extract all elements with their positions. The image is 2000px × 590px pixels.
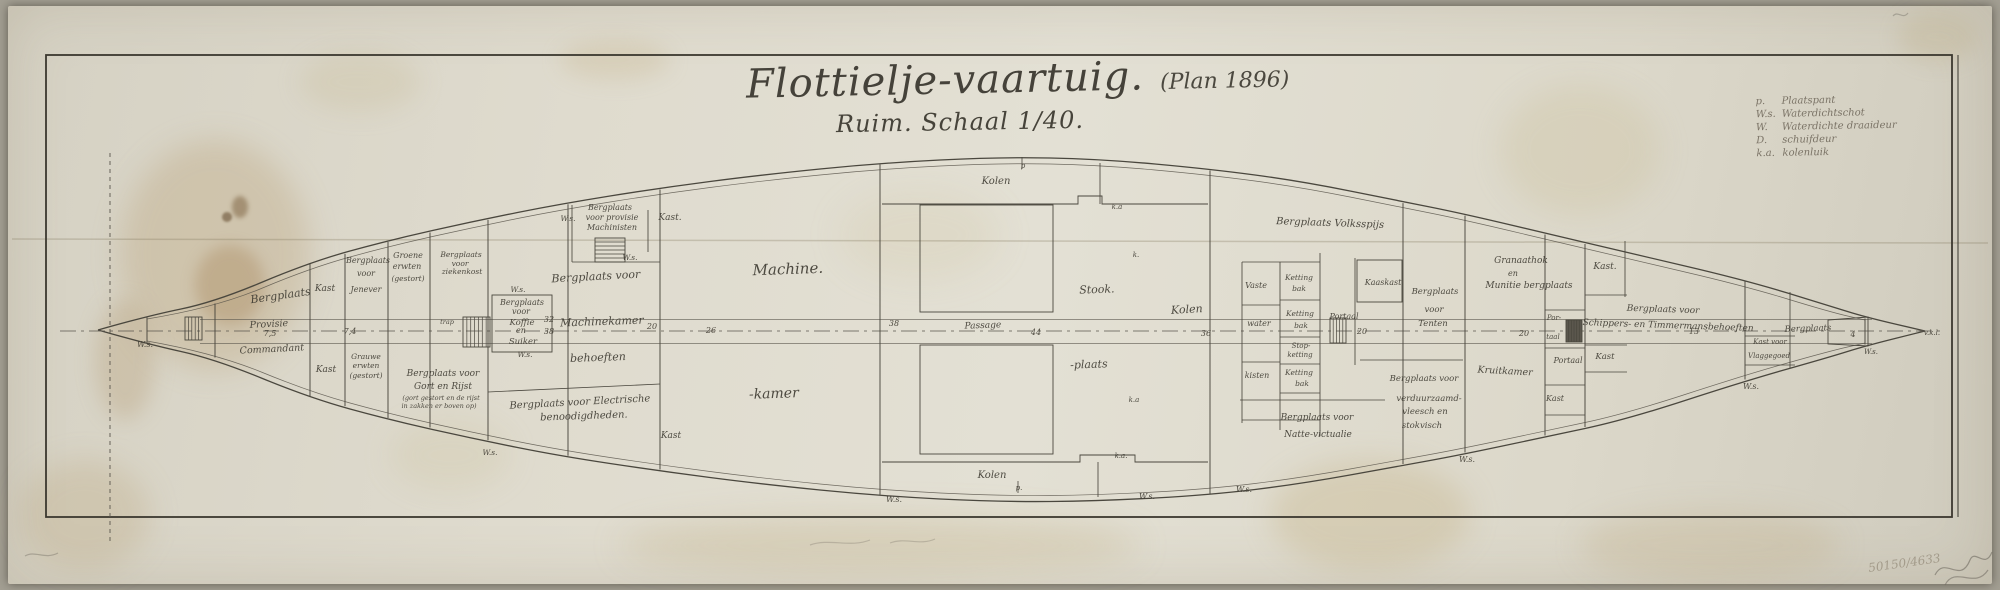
compartment-label: in zakken er boven op) — [401, 402, 477, 410]
compartment-label: stokvisch — [1402, 421, 1442, 431]
legend-abbr: k.a. — [1756, 147, 1782, 160]
compartment-label: Stook. — [1079, 282, 1115, 296]
pencil-mark — [1893, 13, 1908, 16]
compartment-label: (gestort) — [391, 274, 424, 283]
dimension-label: 7,4 — [344, 327, 357, 336]
compartment-label: Bergplaats voor — [406, 369, 480, 379]
plan-title: Flottielje-vaartuig. — [746, 53, 1145, 107]
compartment-label: Bergplaats voor — [550, 268, 641, 286]
compartment-label: en — [1508, 269, 1518, 278]
compartment-label: Bergplaats — [1783, 323, 1832, 335]
compartment-label: Bergplaats — [439, 250, 481, 259]
frame-mark: p. — [1016, 484, 1023, 492]
dimension-label: 20 — [1518, 329, 1529, 338]
hatch-mark: k. — [1133, 251, 1139, 259]
compartment-label: (gestort) — [349, 371, 382, 380]
compartment-label: Bergplaats — [1411, 287, 1459, 297]
compartment-label: -plaats — [1070, 357, 1108, 371]
compartment-label: Grauwe — [351, 352, 381, 361]
legend-row: W.Waterdichte draaideur — [1756, 119, 1897, 134]
compartment-label: Suiker — [509, 337, 538, 347]
compartment-label: Bergplaats voor — [1626, 304, 1701, 317]
compartment-label: Kolen — [981, 176, 1011, 187]
compartment-label: Granaathok — [1494, 256, 1548, 266]
compartment-label: ziekenkost — [441, 267, 484, 276]
compartment-label: voor — [357, 269, 376, 278]
compartment-label: Kruitkamer — [1476, 365, 1534, 379]
compartment-label: kisten — [1245, 371, 1270, 380]
compartment-label: Kast. — [1592, 262, 1616, 272]
compartment-label: (gort gestort en de rijst — [402, 394, 480, 402]
plan-number: (Plan 1896) — [1160, 67, 1290, 95]
compartment-label: Passage — [963, 320, 1001, 331]
compartment-label: Kast — [660, 431, 682, 441]
tip-mark: v.k.l. — [1924, 329, 1940, 337]
compartment-label: Kast — [1594, 352, 1615, 362]
paper-sheet: W.s.BergplaatsKastProvisieCommandantKast… — [8, 6, 1992, 584]
compartment-label: Kaaskast — [1364, 278, 1402, 287]
compartment-label: Jenever — [349, 285, 383, 294]
ws-label: W.s. — [560, 214, 575, 223]
legend-label: kolenluik — [1782, 147, 1829, 159]
compartment-label: behoeften — [570, 350, 626, 365]
compartment-label: Por- — [1546, 314, 1562, 322]
ws-label: W.s. — [1743, 382, 1759, 391]
compartment-label: Natte-victualie — [1283, 430, 1352, 440]
photographed-ship-plan: W.s.BergplaatsKastProvisieCommandantKast… — [0, 0, 2000, 590]
dimension-label: 4 — [1849, 330, 1855, 339]
compartment-label: Stop- — [1292, 342, 1311, 350]
ws-label: W.s. — [1864, 348, 1878, 356]
legend: p.Plaatspant W.s.Waterdichtschot W.Water… — [1755, 93, 1897, 160]
dimension-label: 20 — [646, 322, 657, 331]
compartment-label: Bergplaats voor — [1280, 413, 1354, 423]
compartment-label: Bergplaats Volksspijs — [1275, 216, 1384, 231]
dimension-label: 32 — [544, 315, 554, 324]
pencil-mark — [25, 553, 58, 556]
plan-subtitle: Ruim. Schaal 1/40. — [836, 106, 1084, 138]
compartment-label: Portaal — [1328, 312, 1358, 321]
compartment-label: Groene — [393, 251, 423, 260]
compartment-label: Ketting — [1284, 273, 1313, 282]
compartment-label: -kamer — [749, 385, 801, 403]
pencil-mark — [1935, 552, 1992, 575]
hatch-mark: k.a. — [1115, 452, 1128, 460]
ws-label: W.s. — [1459, 455, 1475, 464]
compartment-label: bak — [1292, 284, 1306, 293]
legend-label: Waterdichtschot — [1782, 107, 1865, 119]
dimension-label: 7,5 — [264, 329, 277, 338]
compartment-label: bak — [1294, 321, 1308, 330]
pencil-mark — [810, 539, 935, 545]
ws-label: W.s. — [1236, 485, 1252, 494]
ws-label: W.s. — [1139, 492, 1155, 501]
compartment-label: Schippers- en Timmermansbehoeften — [1582, 318, 1754, 334]
compartment-label: Vaste — [1245, 281, 1267, 290]
dimension-label: 20 — [1356, 327, 1367, 336]
compartment-label: Kast — [1545, 394, 1565, 403]
compartment-label: Kast. — [657, 213, 681, 223]
legend-abbr: W. — [1756, 121, 1782, 134]
hatch-mark: k.a — [1112, 203, 1123, 211]
compartment-label: voor — [512, 307, 531, 316]
compartment-label: Commandant — [239, 342, 304, 356]
pencil-mark — [1945, 570, 1988, 585]
ws-label: W.s. — [482, 448, 497, 457]
legend-abbr: p. — [1755, 95, 1781, 108]
hatch-mark: k.a — [1129, 396, 1140, 404]
compartment-label: Bergplaats — [499, 298, 544, 307]
ws-label: W.s. — [137, 340, 153, 349]
compartment-label: Machine. — [751, 259, 823, 279]
ws-label: W.s. — [510, 285, 525, 294]
compartment-label: Bergplaats — [587, 203, 632, 212]
compartment-label: Kast — [314, 284, 336, 294]
compartment-label: Bergplaats — [345, 256, 390, 265]
legend-label: Plaatspant — [1781, 95, 1835, 107]
compartment-label: Kolen — [1170, 302, 1203, 317]
dimension-label: 36 — [1201, 329, 1211, 338]
legend-label: schuifdeur — [1782, 134, 1836, 146]
compartment-label: Portaal — [1552, 356, 1582, 365]
dimension-label: 13 — [1689, 327, 1699, 336]
paper-crease — [12, 239, 1988, 243]
compartment-label: verduurzaamd- — [1396, 394, 1461, 404]
compartment-label: Tenten — [1418, 319, 1447, 329]
compartment-label: trap — [440, 318, 455, 326]
compartment-label: erwten — [353, 361, 380, 370]
compartment-label: Bergplaats voor Electrische — [508, 393, 651, 411]
compartment-label: erwten — [393, 262, 422, 271]
legend-row: k.a.kolenluik — [1756, 145, 1897, 160]
compartment-label: Kolen — [977, 470, 1007, 481]
compartment-label: Ketting — [1285, 309, 1314, 318]
legend-abbr: D. — [1756, 134, 1782, 147]
frame-mark: p — [1021, 162, 1026, 170]
dimension-label: 26 — [705, 326, 716, 335]
compartment-label: en — [516, 326, 526, 335]
compartment-label: Ketting — [1284, 368, 1313, 377]
compartment-label: Kast voor — [1752, 338, 1787, 346]
dimension-label: 38 — [889, 319, 899, 328]
dimension-label: 44 — [1030, 328, 1041, 337]
compartment-label: Bergplaats voor — [1389, 374, 1460, 384]
compartment-label: voor — [1424, 305, 1444, 315]
compartment-label: Bergplaats — [249, 285, 312, 307]
compartment-label: benoodigdheden. — [540, 409, 628, 423]
ws-label: W.s. — [517, 350, 532, 359]
legend-abbr: W.s. — [1756, 108, 1782, 121]
compartment-label: bak — [1295, 379, 1309, 388]
compartment-label: vleesch en — [1402, 407, 1447, 417]
compartment-label: taal — [1546, 333, 1559, 341]
compartment-label: Machinekamer — [559, 314, 645, 330]
compartment-label: Kast — [315, 365, 337, 375]
compartment-label: ketting — [1287, 351, 1313, 359]
ws-label: W.s. — [886, 495, 902, 504]
dimension-label: 38 — [544, 327, 554, 336]
legend-label: Waterdichte draaideur — [1782, 120, 1897, 133]
compartment-label: water — [1247, 319, 1272, 328]
compartment-label: Munitie bergplaats — [1484, 281, 1573, 291]
compartment-label: Vlaggegoed — [1748, 352, 1790, 360]
compartment-label: voor provisie — [586, 213, 639, 222]
ws-label: W.s. — [622, 253, 637, 262]
compartment-label: Gort en Rijst — [414, 382, 472, 392]
compartment-label: Machinisten — [586, 223, 637, 232]
